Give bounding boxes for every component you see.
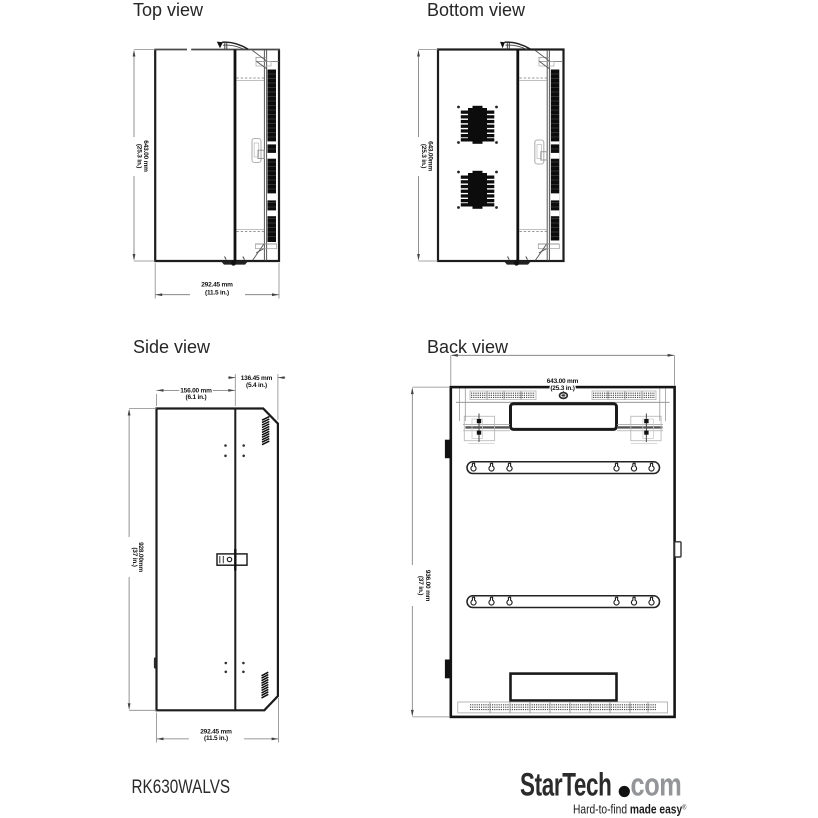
svg-text:(37 in.): (37 in.) xyxy=(131,547,138,566)
svg-text:(25.3 in.): (25.3 in.) xyxy=(550,385,574,392)
svg-text:(11.5 in.): (11.5 in.) xyxy=(204,735,228,742)
svg-text:Bottom view: Bottom view xyxy=(427,0,526,20)
svg-text:Top view: Top view xyxy=(133,0,204,20)
svg-text:Hard-to-find made easy®: Hard-to-find made easy® xyxy=(573,803,687,817)
svg-text:Back view: Back view xyxy=(427,337,509,357)
svg-text:(6.1 in.): (6.1 in.) xyxy=(186,394,207,401)
svg-text:643.00 mm: 643.00 mm xyxy=(547,378,579,385)
svg-text:(25.3 in.): (25.3 in.) xyxy=(136,144,143,168)
svg-text:(11.5 in.): (11.5 in.) xyxy=(205,289,229,296)
svg-text:RK630WALVS: RK630WALVS xyxy=(132,775,231,797)
svg-text:Side view: Side view xyxy=(133,337,211,357)
svg-text:(25.3 in.): (25.3 in.) xyxy=(420,144,427,168)
svg-text:com: com xyxy=(631,767,682,803)
svg-text:StarTech: StarTech xyxy=(520,766,611,802)
svg-text:(37 in.): (37 in.) xyxy=(417,576,424,595)
svg-text:292.45 mm: 292.45 mm xyxy=(201,282,233,289)
svg-text:(5.4 in.): (5.4 in.) xyxy=(246,382,267,389)
